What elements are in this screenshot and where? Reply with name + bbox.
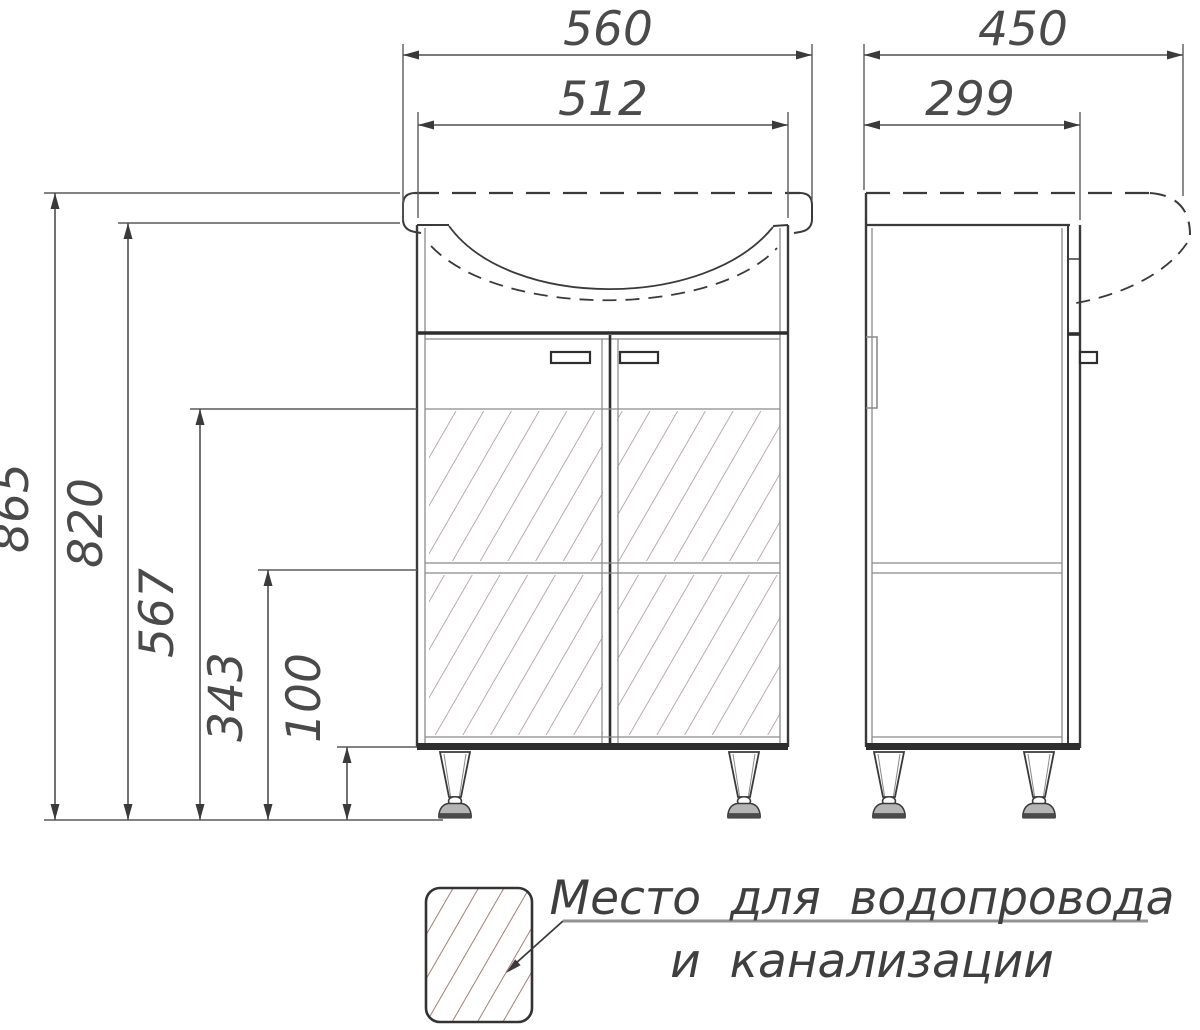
vanity-drawing-svg: 560 512 450 299 <box>0 0 1200 1030</box>
side-back-leg <box>872 752 906 819</box>
left-door-handle <box>551 352 590 363</box>
basin-front-curve <box>449 226 773 289</box>
technical-drawing-canvas: 560 512 450 299 <box>0 0 1200 1030</box>
basin-hidden-curve <box>431 246 777 300</box>
legend: Место для водопровода и канализации <box>426 871 1174 1022</box>
dim-value-100: 100 <box>277 653 332 743</box>
front-left-leg <box>438 752 472 819</box>
dim-value-560: 560 <box>563 2 653 57</box>
basin-side-hidden-curve <box>1070 243 1187 304</box>
front-legs <box>438 752 761 819</box>
dim-value-450: 450 <box>978 2 1068 57</box>
right-door-handle <box>620 352 658 363</box>
front-right-leg <box>727 752 761 819</box>
legend-caption-line1: Место для водопровода <box>550 871 1175 926</box>
legend-hatch-swatch <box>426 888 532 1022</box>
side-base-strip <box>866 743 1080 750</box>
dim-value-865: 865 <box>0 463 40 553</box>
dim-value-299: 299 <box>925 72 1015 127</box>
cabinet-front <box>417 225 788 750</box>
dim-cabinet-width: 512 <box>418 72 788 218</box>
side-view <box>866 193 1190 819</box>
dim-value-512: 512 <box>558 72 648 127</box>
dim-plumbing-zone-height: 567 <box>130 409 417 820</box>
side-front-leg <box>1022 752 1056 819</box>
cabinet-base-strip <box>417 743 788 750</box>
dim-cabinet-depth: 299 <box>864 72 1080 220</box>
dim-value-820: 820 <box>59 478 114 568</box>
dim-leg-height: 100 <box>277 653 417 820</box>
legend-caption-line2: и канализации <box>670 934 1054 989</box>
sink-front <box>403 193 812 300</box>
side-legs <box>872 752 1056 819</box>
dim-value-567: 567 <box>130 568 185 658</box>
side-door-handle <box>1080 352 1097 363</box>
dim-value-343: 343 <box>199 652 254 742</box>
front-view <box>403 193 812 819</box>
dim-sink-depth: 450 <box>864 2 1183 196</box>
